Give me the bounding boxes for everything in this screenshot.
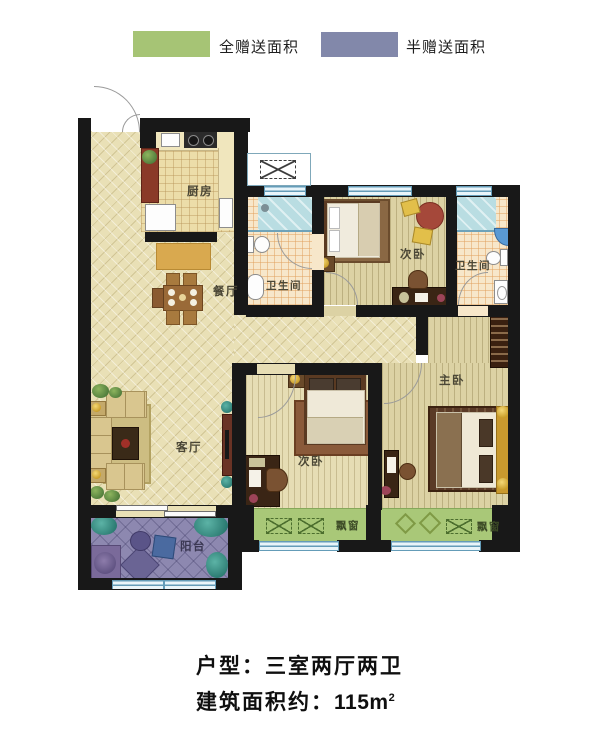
stove [184,132,217,148]
pillow [479,455,493,483]
door-gap [257,364,295,374]
plate [190,289,197,296]
bathroom-vanity [494,280,508,304]
wall [232,363,380,375]
plate [168,289,175,296]
bed [304,375,366,445]
chair [412,226,433,245]
hallway-floor [234,315,416,363]
dining-table [163,285,203,311]
bay-symbol [446,519,472,534]
room-label-living: 客厅 [176,439,202,455]
sliding-door-panel [116,505,168,511]
window [112,580,164,589]
papers [415,293,428,302]
wall [356,305,520,317]
round-table [416,202,444,230]
decor [399,292,409,303]
wardrobe [490,312,510,368]
sink-basin [497,286,507,300]
plant [109,387,122,398]
wall [78,118,91,590]
wall [366,505,381,552]
balcony-table [130,531,151,551]
door-gap [458,306,488,316]
plant [90,486,104,499]
bathroom2-shower [457,197,496,231]
legend: 全赠送面积 半赠送面积 [0,0,600,70]
bay-symbol [266,518,292,534]
bay-symbol [298,518,324,534]
window [264,186,306,196]
papers [387,457,396,473]
legend-full-gift-label: 全赠送面积 [219,36,299,57]
legend-full-gift-swatch [133,31,210,57]
wall [246,305,324,317]
wall [508,185,520,552]
tv [225,430,229,459]
decor [249,458,265,467]
bed [318,201,380,258]
wall [368,363,382,510]
wall [140,131,156,148]
dining-rug [156,243,211,270]
bathroom1-shower-glass [246,230,312,232]
unit-type-text: 户型：三室两厅两卫 [196,650,403,680]
plate [168,299,175,306]
window [391,541,481,551]
window [348,186,412,196]
decor [121,439,130,448]
floorplan-page: 全赠送面积 半赠送面积 [0,0,600,746]
wall [240,505,254,552]
window [259,541,339,551]
pillow [329,207,340,229]
area-label: 建筑面积约： [196,691,334,714]
room-label-bedroom-top: 次卧 [400,246,426,262]
area-superscript: 2 [389,692,397,704]
balcony-chair [152,535,177,560]
coffee-table [112,427,139,460]
dining-chair [183,310,197,325]
room-label-bathroom2: 卫生间 [455,258,491,273]
area-text: 建筑面积约：115m2 [196,686,397,716]
window [164,580,216,589]
plant [142,150,157,164]
stool [399,463,416,480]
door-gap [312,234,324,270]
planter-bowl [94,552,116,574]
wall [145,232,217,242]
plant [91,516,117,535]
room-label-dining: 餐厅 [213,283,239,299]
room-label-kitchen: 厨房 [187,183,213,199]
desk-chair [408,270,428,289]
wall [232,363,246,510]
wall [381,540,391,552]
room-label-bathroom1: 卫生间 [266,278,302,293]
kitchen-sink [161,133,180,147]
area-value: 115m [334,691,389,714]
blanket [437,413,462,487]
fridge [145,204,176,231]
kitchen-appliance [219,198,233,228]
toilet-tank [500,249,508,266]
wall [446,185,457,315]
decor [437,294,445,302]
dining-chair [166,310,180,325]
decor [249,494,258,503]
platform-symbol [260,160,296,179]
wall [337,540,367,552]
table-lamp [92,470,101,479]
plant [206,552,228,578]
room-label-bedroom-bottom: 次卧 [298,453,324,469]
bed [436,412,498,488]
pillow [329,230,340,252]
balcony-planter [91,545,121,580]
door-gap [324,306,356,316]
toilet [254,236,270,253]
papers [249,470,261,487]
plant [104,490,120,502]
room-label-bay2: 飘窗 [477,519,501,534]
room-label-bay1: 飘窗 [336,518,360,533]
plant [92,384,109,398]
legend-half-gift-label: 半赠送面积 [406,36,486,57]
wall [479,540,493,552]
bathroom1-shower [258,197,312,231]
desk-chair [266,468,288,492]
shower-head-icon [261,204,269,212]
room-label-master: 主卧 [439,372,465,388]
pillow [479,419,493,447]
stove-burner [203,135,214,146]
plate [179,294,186,301]
bathroom2-shower-glass [457,230,497,232]
room-label-balcony: 阳台 [180,538,206,554]
toilet-tank [247,236,254,253]
stove-burner [188,135,199,146]
blanket [358,203,379,256]
sliding-door-panel [164,511,216,517]
table-lamp [92,403,101,412]
legend-half-gift-swatch [321,32,398,57]
window [456,186,492,196]
blanket [307,417,363,443]
bathroom-sink [247,274,264,300]
plate [190,299,197,306]
dining-side-chair [152,288,164,308]
wall [416,305,428,355]
armchair [106,463,145,490]
